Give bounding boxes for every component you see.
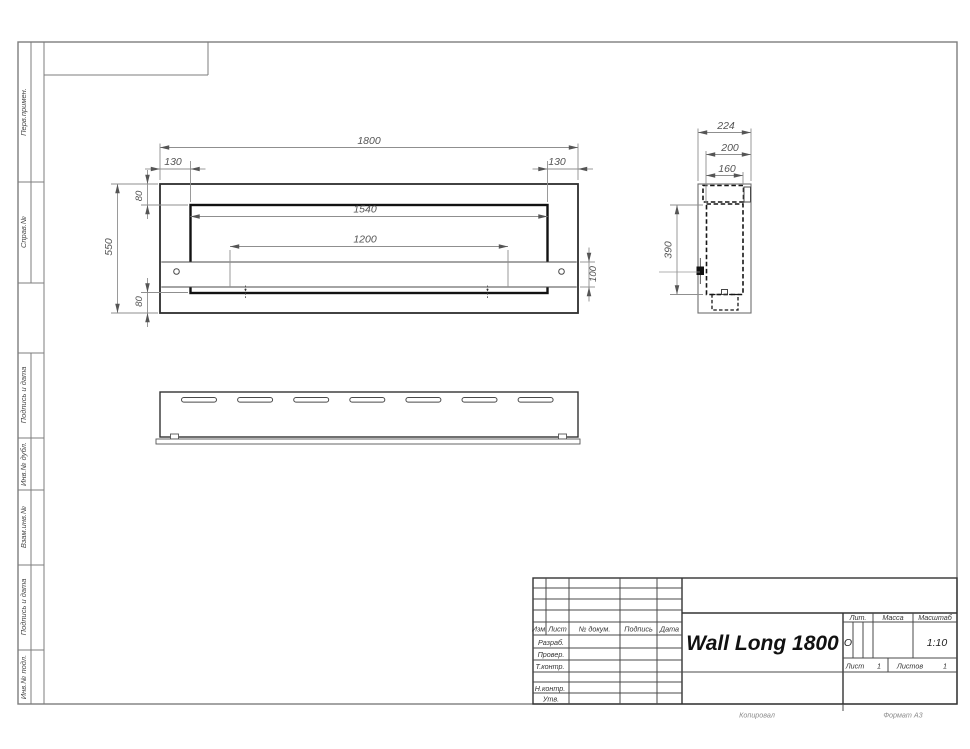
dim-bracket-height: 100 xyxy=(588,265,599,282)
margin-label-perv-primen: Перв.примен. xyxy=(19,88,28,136)
tb-sheets-label: Листов xyxy=(896,662,923,671)
tb-lit-label: Лит. xyxy=(849,613,867,622)
dim-inner-depth: 200 xyxy=(720,142,739,154)
drawing-canvas: Перв.примен. Справ.№ Подпись и дата Инв.… xyxy=(0,0,970,749)
footer-copied-label: Копировал xyxy=(739,711,775,720)
mounting-rail xyxy=(156,434,580,444)
tb-sheets-value: 1 xyxy=(943,662,947,671)
margin-label-vzam-inv: Взам.инв.№ xyxy=(19,506,28,548)
dim-opening-depth: 160 xyxy=(718,163,736,175)
sheet-frame xyxy=(18,42,957,704)
tb-scale-label: Масштаб xyxy=(918,613,953,622)
tb-row-nkontr: Н.контр. xyxy=(535,684,565,693)
dim-overall-width: 1800 xyxy=(357,135,381,147)
dim-right-inset: 130 xyxy=(548,156,566,168)
margin-label-inv-podl: Инв.№ подл. xyxy=(19,655,28,699)
tb-lit-value: О xyxy=(844,637,852,649)
margin-labels: Перв.примен. Справ.№ Подпись и дата Инв.… xyxy=(19,88,28,699)
dim-overall-depth: 224 xyxy=(716,120,735,132)
sheet-footer: Копировал Формат А3 xyxy=(739,704,923,720)
drawing-title: Wall Long 1800 xyxy=(686,632,839,655)
tb-scale-value: 1:10 xyxy=(927,637,948,649)
drawing-sheet: Перв.примен. Справ.№ Подпись и дата Инв.… xyxy=(0,0,970,749)
margin-label-inv-dubl: Инв.№ дубл. xyxy=(19,442,28,486)
tb-row-tkontr: Т.контр. xyxy=(536,662,565,671)
tb-col-doc: № докум. xyxy=(579,625,611,634)
tb-sheet-label: Лист xyxy=(845,662,865,671)
footer-format-label: Формат А3 xyxy=(883,711,922,720)
tb-col-izm: Изм. xyxy=(532,625,547,634)
wall-bracket-detail xyxy=(659,258,704,284)
tb-sheet-value: 1 xyxy=(877,662,881,671)
tb-col-list: Лист xyxy=(547,625,567,634)
dim-bottom-flange: 80 xyxy=(134,296,145,307)
tb-row-utv: Утв. xyxy=(542,695,559,704)
tb-col-sign: Подпись xyxy=(624,625,653,634)
dim-left-inset: 130 xyxy=(164,156,182,168)
vent-slots xyxy=(182,398,554,403)
tb-row-prover: Провер. xyxy=(538,650,565,659)
dim-bracket-span: 1200 xyxy=(353,234,377,246)
bottom-view xyxy=(156,392,580,444)
margin-label-podpis-data-2: Подпись и дата xyxy=(19,579,28,636)
tb-col-date: Дата xyxy=(659,625,679,634)
dim-opening-width: 1540 xyxy=(353,204,377,216)
margin-label-podpis-data-1: Подпись и дата xyxy=(19,367,28,424)
dim-top-flange: 80 xyxy=(134,190,145,201)
front-view-dimensions: 1800 130 130 80 550 80 1540 xyxy=(103,135,599,327)
dim-inner-height: 390 xyxy=(663,241,675,259)
tb-mass-label: Масса xyxy=(882,613,903,622)
dim-overall-height: 550 xyxy=(103,238,115,256)
tb-row-razrab: Разраб. xyxy=(538,638,564,647)
margin-label-sprav-no: Справ.№ xyxy=(19,216,28,248)
title-block: Изм. Лист № докум. Подпись Дата Разраб. … xyxy=(532,578,957,704)
